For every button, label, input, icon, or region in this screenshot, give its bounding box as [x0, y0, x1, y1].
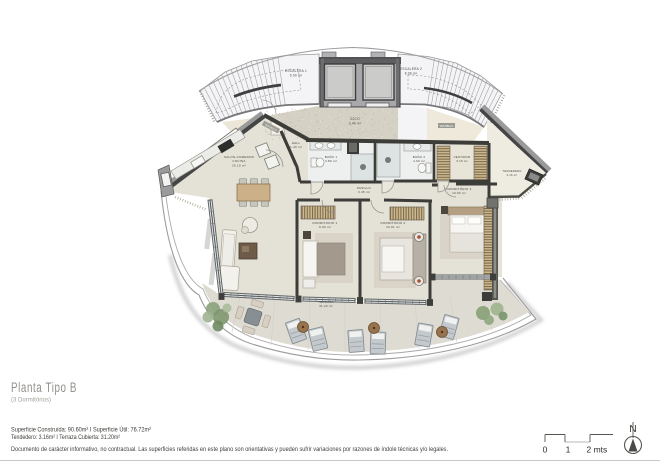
svg-text:Tendedero: 3.16m² I Terraza Cu: Tendedero: 3.16m² I Terraza Cubierta: 31… — [11, 434, 120, 441]
svg-text:1: 1 — [566, 445, 571, 455]
svg-text:HALL1.40 m²: HALL1.40 m² — [290, 141, 302, 149]
svg-text:PASILLO3.45 m²: PASILLO3.45 m² — [357, 186, 371, 194]
svg-text:(3 Dormitórios): (3 Dormitórios) — [11, 397, 51, 404]
svg-text:ZZCO3.40 m²: ZZCO3.40 m² — [349, 117, 362, 125]
svg-text:0: 0 — [543, 445, 548, 455]
svg-text:BAÑO 13.80 m²: BAÑO 13.80 m² — [325, 154, 338, 163]
svg-text:Planta Tipo B: Planta Tipo B — [11, 380, 77, 395]
svg-text:Superficie Construída: 90.60m²: Superficie Construída: 90.60m² I Superfi… — [11, 425, 151, 434]
svg-text:VESTIBULO: VESTIBULO — [440, 125, 454, 128]
svg-text:TERRAZA31.20 m²: TERRAZA31.20 m² — [318, 300, 334, 308]
svg-text:Documento de carácter informat: Documento de carácter informativo, no co… — [11, 446, 448, 453]
svg-text:BAÑO 24.00 m²: BAÑO 24.00 m² — [413, 154, 426, 163]
svg-text:2 mts: 2 mts — [587, 445, 608, 455]
